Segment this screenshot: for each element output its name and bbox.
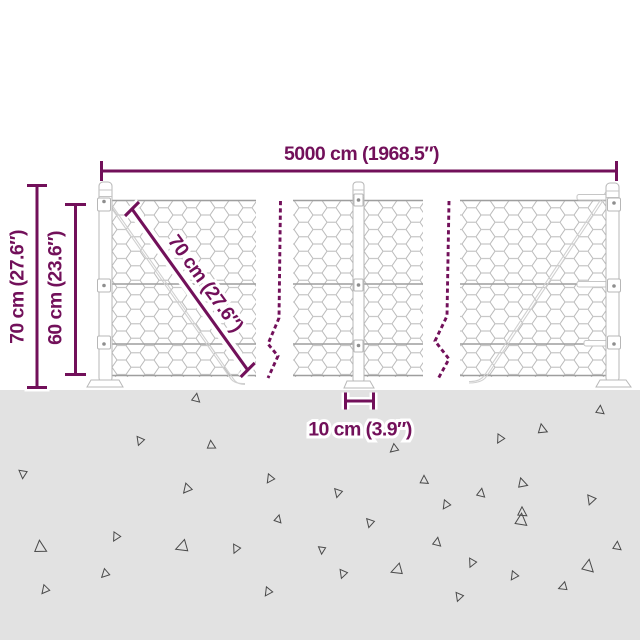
svg-text:10 cm (3.9″): 10 cm (3.9″) <box>308 419 412 441</box>
svg-text:5000 cm (1968.5″): 5000 cm (1968.5″) <box>284 143 439 165</box>
svg-text:60 cm (23.6″): 60 cm (23.6″) <box>45 231 67 345</box>
svg-text:70 cm (27.6″): 70 cm (27.6″) <box>7 230 29 344</box>
